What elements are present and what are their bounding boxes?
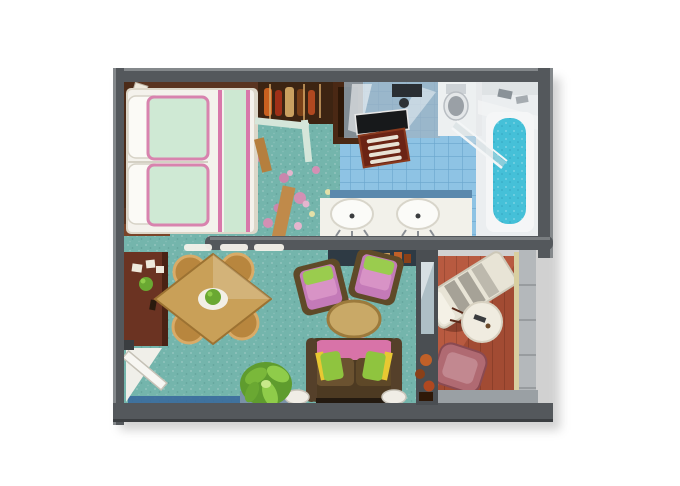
wood-bath-mat <box>359 129 409 168</box>
balcony-railing <box>519 250 536 397</box>
duvet-pink-stripe-2 <box>246 90 250 232</box>
middle-wall-highlight <box>210 237 550 240</box>
sofa-arm-left <box>306 338 317 402</box>
green-pillow-bottom <box>148 165 208 225</box>
side-lamp-right <box>382 390 406 404</box>
table-centerpiece <box>205 289 221 305</box>
double-sink-vanity <box>320 190 472 237</box>
sink-right-drain <box>416 214 421 219</box>
console-item-2 <box>404 254 411 263</box>
balcony-divider <box>415 250 438 405</box>
left-wall-highlight <box>113 68 116 425</box>
top-wall-highlight <box>113 68 553 71</box>
floorplan-illustration <box>0 0 680 486</box>
right-wall-highlight <box>550 68 553 258</box>
bathtub-texture <box>493 118 526 224</box>
centerpiece-leaf <box>208 292 213 297</box>
balcony-bottom-rail <box>438 390 538 405</box>
duvet-pink-stripe-1 <box>218 90 222 232</box>
green-pillow-top <box>148 97 208 159</box>
wall-light-strips <box>184 244 284 251</box>
floorplan-canvas <box>0 0 680 486</box>
sink-left-drain <box>350 214 355 219</box>
duvet-green-band <box>224 90 246 232</box>
shower-fixture <box>392 84 422 97</box>
bottom-wall-shadow <box>113 419 553 422</box>
round-table <box>462 302 502 342</box>
railing-inner-trim <box>514 252 519 395</box>
shower-head-icon <box>399 98 409 108</box>
door-frame <box>124 340 134 350</box>
coffee-table <box>328 301 380 337</box>
double-bed <box>126 88 258 234</box>
toilet-lid <box>448 96 464 116</box>
table-item-dot <box>486 324 491 329</box>
